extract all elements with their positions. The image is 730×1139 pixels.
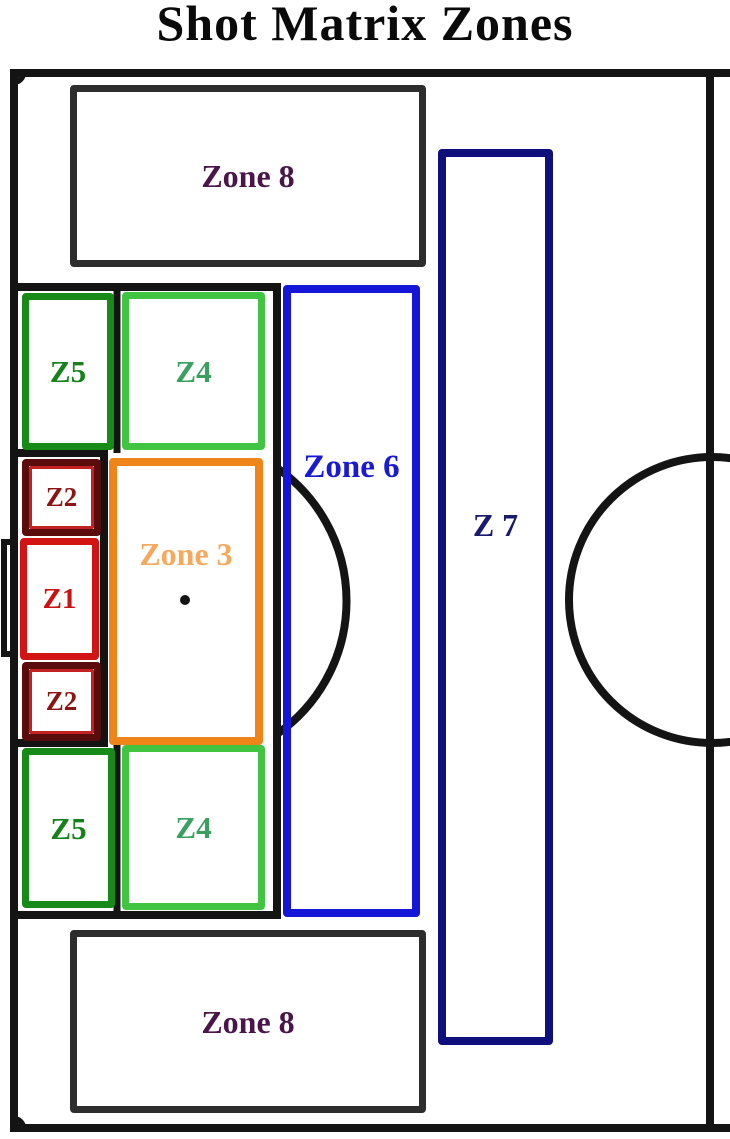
- center-circle: [569, 457, 730, 743]
- zone-label-z2-bottom: Z2: [46, 688, 78, 715]
- zone-label-zone8-bottom: Zone 8: [201, 1006, 294, 1038]
- zone-box-z4-bottom: Z4: [122, 745, 265, 910]
- zone-label-z5-bottom: Z5: [50, 813, 86, 844]
- zone-label-z4-top: Z4: [175, 356, 211, 387]
- zone-label-z5-top: Z5: [50, 356, 86, 387]
- zone-box-zone8-top: Zone 8: [70, 85, 426, 267]
- zone-box-z5-top: Z5: [22, 293, 114, 450]
- zone-box-z5-bottom: Z5: [22, 748, 115, 908]
- zone-label-z4-bottom: Z4: [175, 812, 211, 843]
- zone-box-z2-bottom: Z2: [22, 662, 101, 741]
- zone-box-z4-top: Z4: [122, 292, 265, 450]
- zone-box-z1: Z1: [20, 538, 99, 660]
- zone-label-z2-top: Z2: [46, 484, 78, 511]
- zone-box-zone6: Zone 6: [283, 285, 420, 917]
- shot-matrix-diagram: Shot Matrix Zones Zone 8: [0, 0, 730, 1139]
- zone-label-zone6: Zone 6: [303, 293, 399, 484]
- zone-label-zone3: Zone 3: [139, 466, 232, 570]
- zone-box-zone7: Z 7: [438, 149, 553, 1045]
- zone-label-zone7: Z 7: [473, 157, 518, 541]
- zone-box-zone3: Zone 3: [109, 458, 263, 745]
- zone-box-z2-top: Z2: [22, 459, 101, 536]
- zone-label-z1: Z1: [43, 585, 77, 614]
- zone-label-zone8-top: Zone 8: [201, 160, 294, 192]
- zone-box-zone8-bottom: Zone 8: [70, 930, 426, 1113]
- goal-box: [4, 542, 15, 654]
